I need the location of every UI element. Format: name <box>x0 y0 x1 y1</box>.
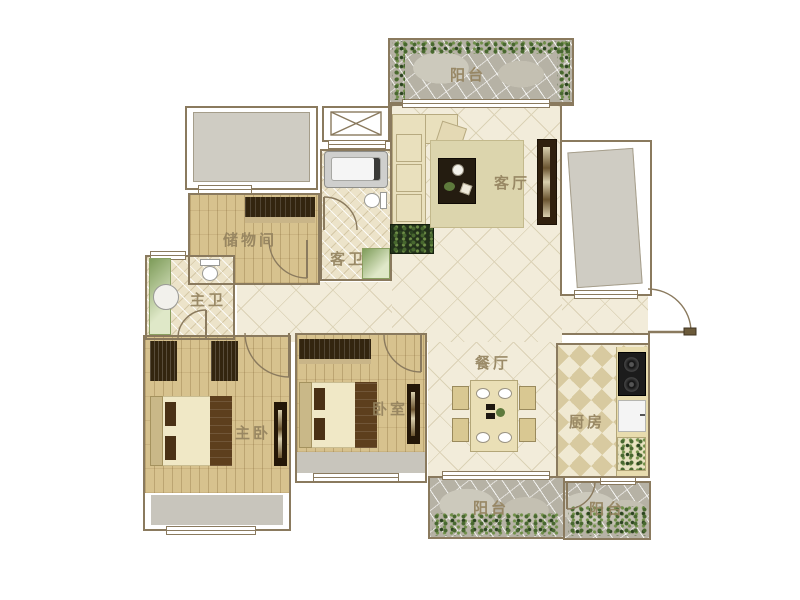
bedroom-window <box>313 473 399 482</box>
sink-unit <box>618 400 646 432</box>
plate <box>476 388 490 399</box>
master-toilet-bowl <box>202 266 218 281</box>
dining-chair <box>452 386 469 410</box>
label-master-bedroom: 主卧 <box>223 422 283 443</box>
wardrobe <box>150 341 177 381</box>
balcony-top-plants-right <box>557 41 570 100</box>
entry-south-wall <box>562 333 650 335</box>
label-balcony-bottom-left: 阳台 <box>461 497 521 518</box>
adjacent-room-walls <box>185 106 318 190</box>
label-kitchen: 厨房 <box>557 411 617 432</box>
label-dining-room: 餐厅 <box>463 352 523 373</box>
wardrobe <box>211 341 238 381</box>
plate <box>498 388 512 399</box>
plate <box>498 432 512 443</box>
adjacent-room-window <box>198 185 252 194</box>
placemat <box>486 404 495 410</box>
entry-floor <box>562 296 648 335</box>
bed-pillow <box>314 388 325 410</box>
label-bedroom: 卧室 <box>360 398 420 419</box>
entry-door-jamb <box>648 332 650 345</box>
sofa-cushion <box>396 194 422 222</box>
shower-tray <box>153 284 179 310</box>
bed-headboard <box>150 396 163 466</box>
guest-bathroom-window <box>328 140 386 149</box>
label-balcony-top: 阳台 <box>438 64 498 85</box>
bathtub-basin <box>331 157 381 181</box>
bed-pillow <box>165 402 176 426</box>
label-guest-bathroom: 客卫 <box>318 248 378 269</box>
plant-stand <box>390 224 434 254</box>
plate <box>476 432 490 443</box>
bed-headboard <box>299 382 312 448</box>
dining-chair <box>519 418 536 442</box>
sink-faucet <box>640 414 645 416</box>
wardrobe <box>299 339 371 359</box>
centerpiece-plant <box>496 408 505 417</box>
tv-screen <box>543 147 550 217</box>
toilet-bowl <box>364 193 380 208</box>
toilet-tank <box>380 192 387 209</box>
balcony-top-plants-left <box>392 41 405 100</box>
adjacent-room-right-window <box>574 290 638 299</box>
stove-burner <box>623 357 640 372</box>
label-master-bathroom: 主卫 <box>178 289 238 310</box>
label-storage-room: 储物间 <box>205 229 295 250</box>
adjacent-room-right-walls <box>560 140 652 296</box>
dining-chair <box>519 386 536 410</box>
sofa-cushion <box>396 164 422 192</box>
placemat <box>486 413 495 419</box>
master-bedroom-window <box>166 526 256 535</box>
storage-shelf <box>245 197 315 217</box>
storage-shelf-edge <box>245 217 315 223</box>
table-plant <box>444 182 455 191</box>
bed-pillow <box>314 418 325 440</box>
balcony-top-plants <box>392 41 570 54</box>
sofa-cushion <box>396 134 422 162</box>
dining-balcony-window <box>442 471 550 480</box>
master-toilet-tank <box>200 259 220 266</box>
dining-chair <box>452 418 469 442</box>
entry-door-handle <box>684 328 696 335</box>
stove-burner <box>623 377 640 392</box>
ac-shaft-walls <box>322 106 390 142</box>
floor-plan: 阳台 客厅 储物间 客卫 主卫 主卧 卧室 餐厅 厨房 阳台 阳台 <box>0 0 800 600</box>
label-balcony-bottom-right: 阳台 <box>577 498 637 519</box>
bed-pillow <box>165 436 176 460</box>
table-plate <box>452 164 464 176</box>
wardrobe-edge <box>299 359 371 364</box>
living-balcony-slider-window <box>402 99 550 108</box>
living-room-east-wall <box>560 104 562 296</box>
kitchen-balcony-window <box>600 477 636 485</box>
label-living-room: 客厅 <box>482 172 542 193</box>
cutting-board-greens <box>617 437 646 471</box>
